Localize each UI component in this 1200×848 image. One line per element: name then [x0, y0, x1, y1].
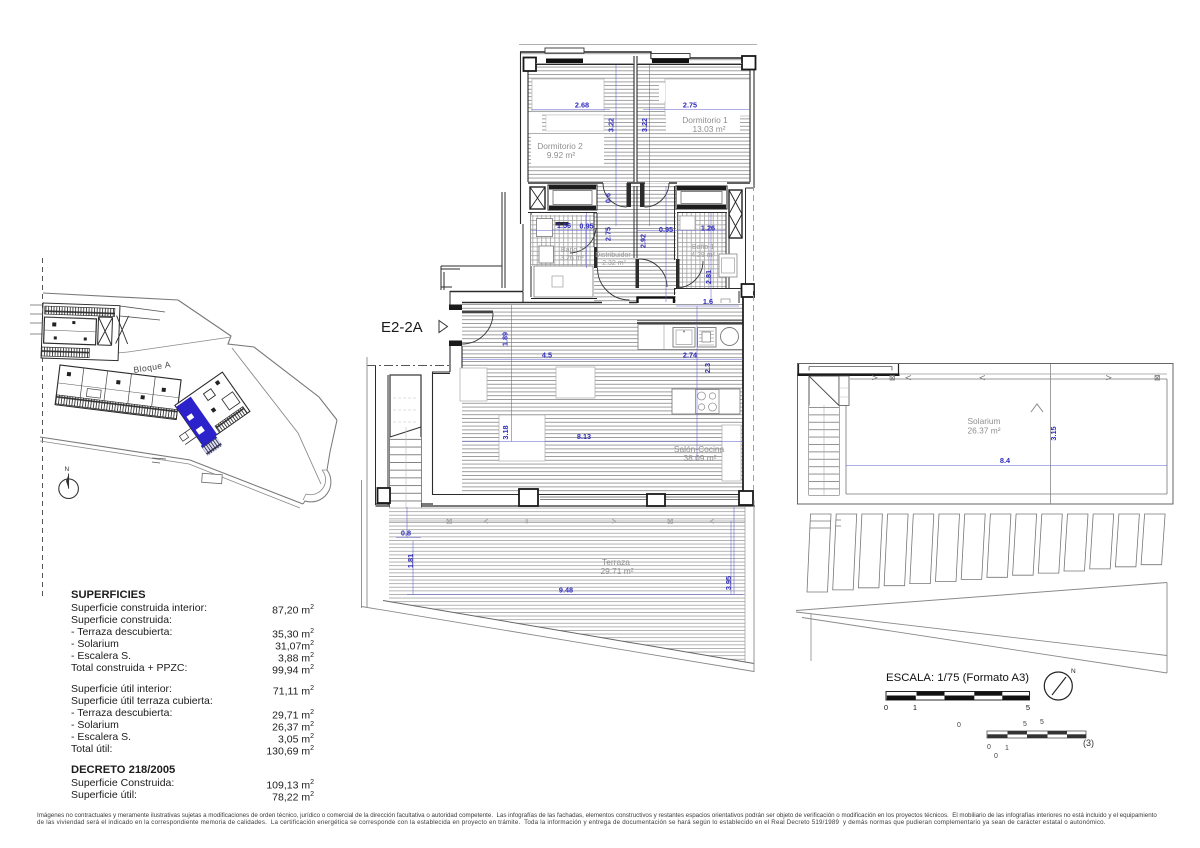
svg-text:2.75: 2.75 — [683, 101, 697, 110]
svg-text:2.3: 2.3 — [703, 363, 712, 373]
svg-text:9.48: 9.48 — [559, 586, 573, 595]
svg-text:2.74: 2.74 — [683, 351, 698, 360]
svg-text:2.68: 2.68 — [575, 101, 589, 110]
svg-text:5: 5 — [1026, 703, 1030, 712]
svg-text:1.56: 1.56 — [557, 221, 571, 230]
svg-text:29.71 m²: 29.71 m² — [600, 566, 633, 576]
svg-text:1: 1 — [913, 703, 917, 712]
svg-text:1.6: 1.6 — [703, 297, 713, 306]
svg-text:ESCALA: 1/75 (Formato A3): ESCALA: 1/75 (Formato A3) — [886, 672, 1029, 684]
svg-text:0.6: 0.6 — [604, 193, 613, 203]
svg-text:N: N — [65, 466, 70, 473]
svg-text:9.92 m²: 9.92 m² — [547, 150, 576, 160]
svg-text:N: N — [1071, 668, 1076, 675]
svg-text:1.89: 1.89 — [501, 332, 510, 346]
svg-text:2.32 m²: 2.32 m² — [602, 260, 626, 267]
svg-text:0.95: 0.95 — [579, 222, 593, 231]
svg-text:1.26: 1.26 — [701, 224, 715, 233]
svg-text:26.37 m²: 26.37 m² — [967, 426, 1000, 436]
svg-text:E2-2A: E2-2A — [381, 319, 423, 336]
svg-text:4.29 m²: 4.29 m² — [691, 252, 715, 259]
svg-text:5: 5 — [1023, 721, 1027, 728]
svg-text:0.95: 0.95 — [659, 225, 673, 234]
svg-text:Baño 2: Baño 2 — [561, 247, 583, 254]
svg-text:Distribuidor: Distribuidor — [595, 252, 631, 259]
svg-text:13.03 m²: 13.03 m² — [692, 124, 725, 134]
svg-text:0: 0 — [884, 703, 888, 712]
svg-text:38.09 m²: 38.09 m² — [683, 453, 716, 463]
svg-text:3.22: 3.22 — [607, 118, 616, 132]
svg-text:3.26 m²: 3.26 m² — [560, 255, 584, 262]
svg-text:0.8: 0.8 — [401, 529, 411, 538]
svg-text:0: 0 — [957, 722, 961, 729]
svg-text:0: 0 — [994, 753, 998, 760]
svg-text:3.22: 3.22 — [640, 118, 649, 132]
svg-text:(3): (3) — [1083, 738, 1094, 748]
svg-text:1.81: 1.81 — [406, 554, 415, 568]
svg-text:3.18: 3.18 — [501, 425, 510, 439]
svg-text:Solarium: Solarium — [967, 416, 1000, 426]
svg-text:1: 1 — [1005, 745, 1009, 752]
svg-text:2.75: 2.75 — [604, 227, 613, 241]
svg-text:Bloque A: Bloque A — [133, 359, 172, 375]
svg-text:0: 0 — [987, 744, 991, 751]
svg-text:2.92: 2.92 — [639, 234, 648, 248]
svg-text:5: 5 — [1040, 719, 1044, 726]
svg-text:3.95: 3.95 — [724, 576, 733, 590]
svg-text:4.5: 4.5 — [542, 351, 552, 360]
svg-text:8.13: 8.13 — [577, 432, 591, 441]
svg-text:8.4: 8.4 — [1000, 456, 1011, 465]
svg-text:Baño 1: Baño 1 — [692, 244, 714, 251]
svg-text:3.15: 3.15 — [1049, 426, 1058, 440]
svg-text:2.81: 2.81 — [704, 270, 713, 284]
